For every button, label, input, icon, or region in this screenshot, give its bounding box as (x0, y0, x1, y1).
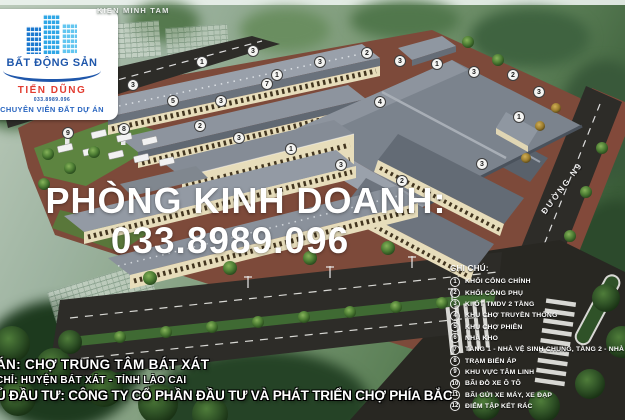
legend-item-label: KI ỐT TMDV 2 TẦNG (465, 301, 534, 308)
building-marker-4: 4 (374, 96, 386, 108)
legend-item-number: 7 (450, 345, 460, 355)
building-marker-5: 5 (167, 95, 179, 107)
building-marker-3: 3 (233, 132, 245, 144)
agent-logo-card: BẤT ĐỘNG SẢN TIẾN DŨNG 033.8989.096 CHUY… (0, 9, 118, 120)
legend-item-label: BÃI GỬI XE MÁY, XE ĐẠP (465, 392, 552, 399)
legend-item-number: 1 (450, 277, 460, 287)
legend-item-label: TẦNG 1 - NHÀ VỆ SINH CHUNG, TẦNG 2 - NHÀ… (465, 346, 625, 353)
hotline-phone-number: 033.8989.096 (10, 220, 450, 262)
agent-name: TIẾN DŨNG (0, 85, 118, 96)
building-marker-3: 3 (533, 86, 545, 98)
legend-item-label: KHỐI CỔNG CHÍNH (465, 278, 531, 285)
building-marker-3: 3 (335, 159, 347, 171)
building-marker-2: 2 (194, 120, 206, 132)
poster-canvas: 13323131753432312313231298 ĐƯỜNG N1 ĐƯỜN… (0, 0, 625, 420)
legend-item-label: KHỐI CỔNG PHỤ (465, 290, 523, 297)
legend-item-label: ĐIỂM TẬP KẾT RÁC (465, 403, 533, 410)
legend-item-8: 8TRẠM BIẾN ÁP (450, 355, 625, 366)
legend-item-9: 9KHU VỰC TÂM LINH (450, 367, 625, 378)
building-marker-8: 8 (118, 123, 130, 135)
building-marker-3: 3 (127, 79, 139, 91)
legend-title: GHI CHÚ: (450, 264, 489, 273)
legend-item-6: 6NHÀ KHO (450, 333, 625, 344)
building-marker-2: 2 (507, 69, 519, 81)
legend-item-label: NHÀ KHO (465, 335, 498, 342)
legend-item-number: 2 (450, 288, 460, 298)
building-marker-3: 3 (476, 158, 488, 170)
legend-item-7: 7TẦNG 1 - NHÀ VỆ SINH CHUNG, TẦNG 2 - NH… (450, 344, 625, 355)
legend-item-number: 6 (450, 333, 460, 343)
legend-item-12: 12ĐIỂM TẬP KẾT RÁC (450, 401, 625, 412)
legend-item-2: 2KHỐI CỔNG PHỤ (450, 287, 625, 298)
legend-item-3: 3KI ỐT TMDV 2 TẦNG (450, 299, 625, 310)
legend-item-11: 11BÃI GỬI XE MÁY, XE ĐẠP (450, 389, 625, 400)
building-marker-3: 3 (247, 45, 259, 57)
building-marker-3: 3 (215, 95, 227, 107)
legend-item-label: KHU CHỢ PHIÊN (465, 324, 523, 331)
legend-item-4: 4KHU CHỢ TRUYỀN THỐNG (450, 310, 625, 321)
project-address: CHỈ: HUYỆN BÁT XÁT - TỈNH LÀO CAI (0, 375, 452, 386)
legend-item-1: 1KHỐI CỔNG CHÍNH (450, 276, 625, 287)
building-marker-1: 1 (431, 58, 443, 70)
hotline-label: PHÒNG KINH DOANH: (28, 180, 464, 222)
legend-item-label: KHU CHỢ TRUYỀN THỐNG (465, 312, 558, 319)
building-marker-1: 1 (271, 69, 283, 81)
building-marker-9: 9 (62, 127, 74, 139)
legend-item-number: 4 (450, 311, 460, 321)
legend: 1KHỐI CỔNG CHÍNH2KHỐI CỔNG PHỤ3KI ỐT TMD… (450, 276, 625, 412)
project-info: ÁN: CHỢ TRUNG TÂM BÁT XÁT CHỈ: HUYỆN BÁT… (0, 357, 452, 403)
buildings-logo-icon (20, 14, 84, 54)
legend-item-5: 5KHU CHỢ PHIÊN (450, 321, 625, 332)
building-marker-2: 2 (361, 47, 373, 59)
legend-item-label: KHU VỰC TÂM LINH (465, 369, 534, 376)
legend-item-label: TRẠM BIẾN ÁP (465, 358, 517, 365)
legend-item-number: 3 (450, 299, 460, 309)
top-watermark: KIEN MINH TAM (97, 6, 170, 15)
legend-item-number: 5 (450, 322, 460, 332)
agent-subtitle: CHUYÊN VIÊN ĐẤT DỰ ÁN (0, 105, 118, 114)
legend-item-10: 10BÃI ĐỖ XE Ô TÔ (450, 378, 625, 389)
building-marker-1: 1 (196, 56, 208, 68)
building-marker-1: 1 (285, 143, 297, 155)
logo-arc-swoosh (3, 68, 101, 82)
logo-phone-number: 033.8989.096 (0, 97, 118, 103)
building-marker-3: 3 (394, 55, 406, 67)
building-marker-7: 7 (261, 78, 273, 90)
project-name: ÁN: CHỢ TRUNG TÂM BÁT XÁT (0, 357, 452, 372)
project-investor: Ủ ĐẦU TƯ: CÔNG TY CỔ PHẦN ĐẦU TƯ VÀ PHÁT… (0, 388, 452, 403)
legend-item-label: BÃI ĐỖ XE Ô TÔ (465, 380, 521, 387)
building-marker-3: 3 (314, 56, 326, 68)
building-marker-3: 3 (468, 66, 480, 78)
building-marker-1: 1 (513, 111, 525, 123)
